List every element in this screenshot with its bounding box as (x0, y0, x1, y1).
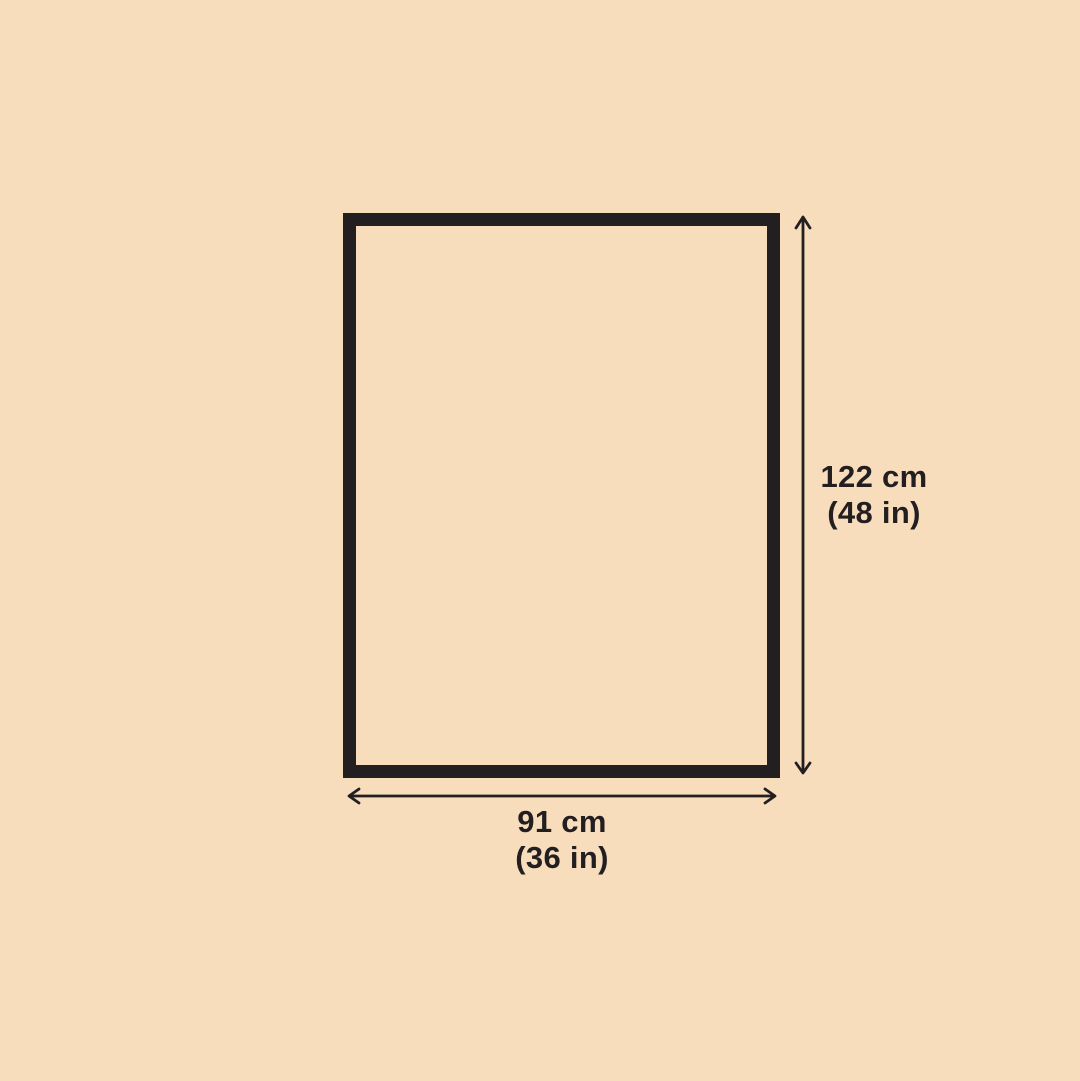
height-in-text: (48 in) (804, 495, 944, 531)
dimension-diagram: 122 cm (48 in) 91 cm (36 in) (0, 0, 1080, 1081)
width-dimension-label: 91 cm (36 in) (482, 804, 642, 876)
width-cm-text: 91 cm (482, 804, 642, 840)
dimension-arrows (0, 0, 1080, 1081)
height-dimension-label: 122 cm (48 in) (804, 459, 944, 531)
width-dimension-arrow (349, 789, 775, 803)
height-cm-text: 122 cm (804, 459, 944, 495)
width-in-text: (36 in) (482, 840, 642, 876)
